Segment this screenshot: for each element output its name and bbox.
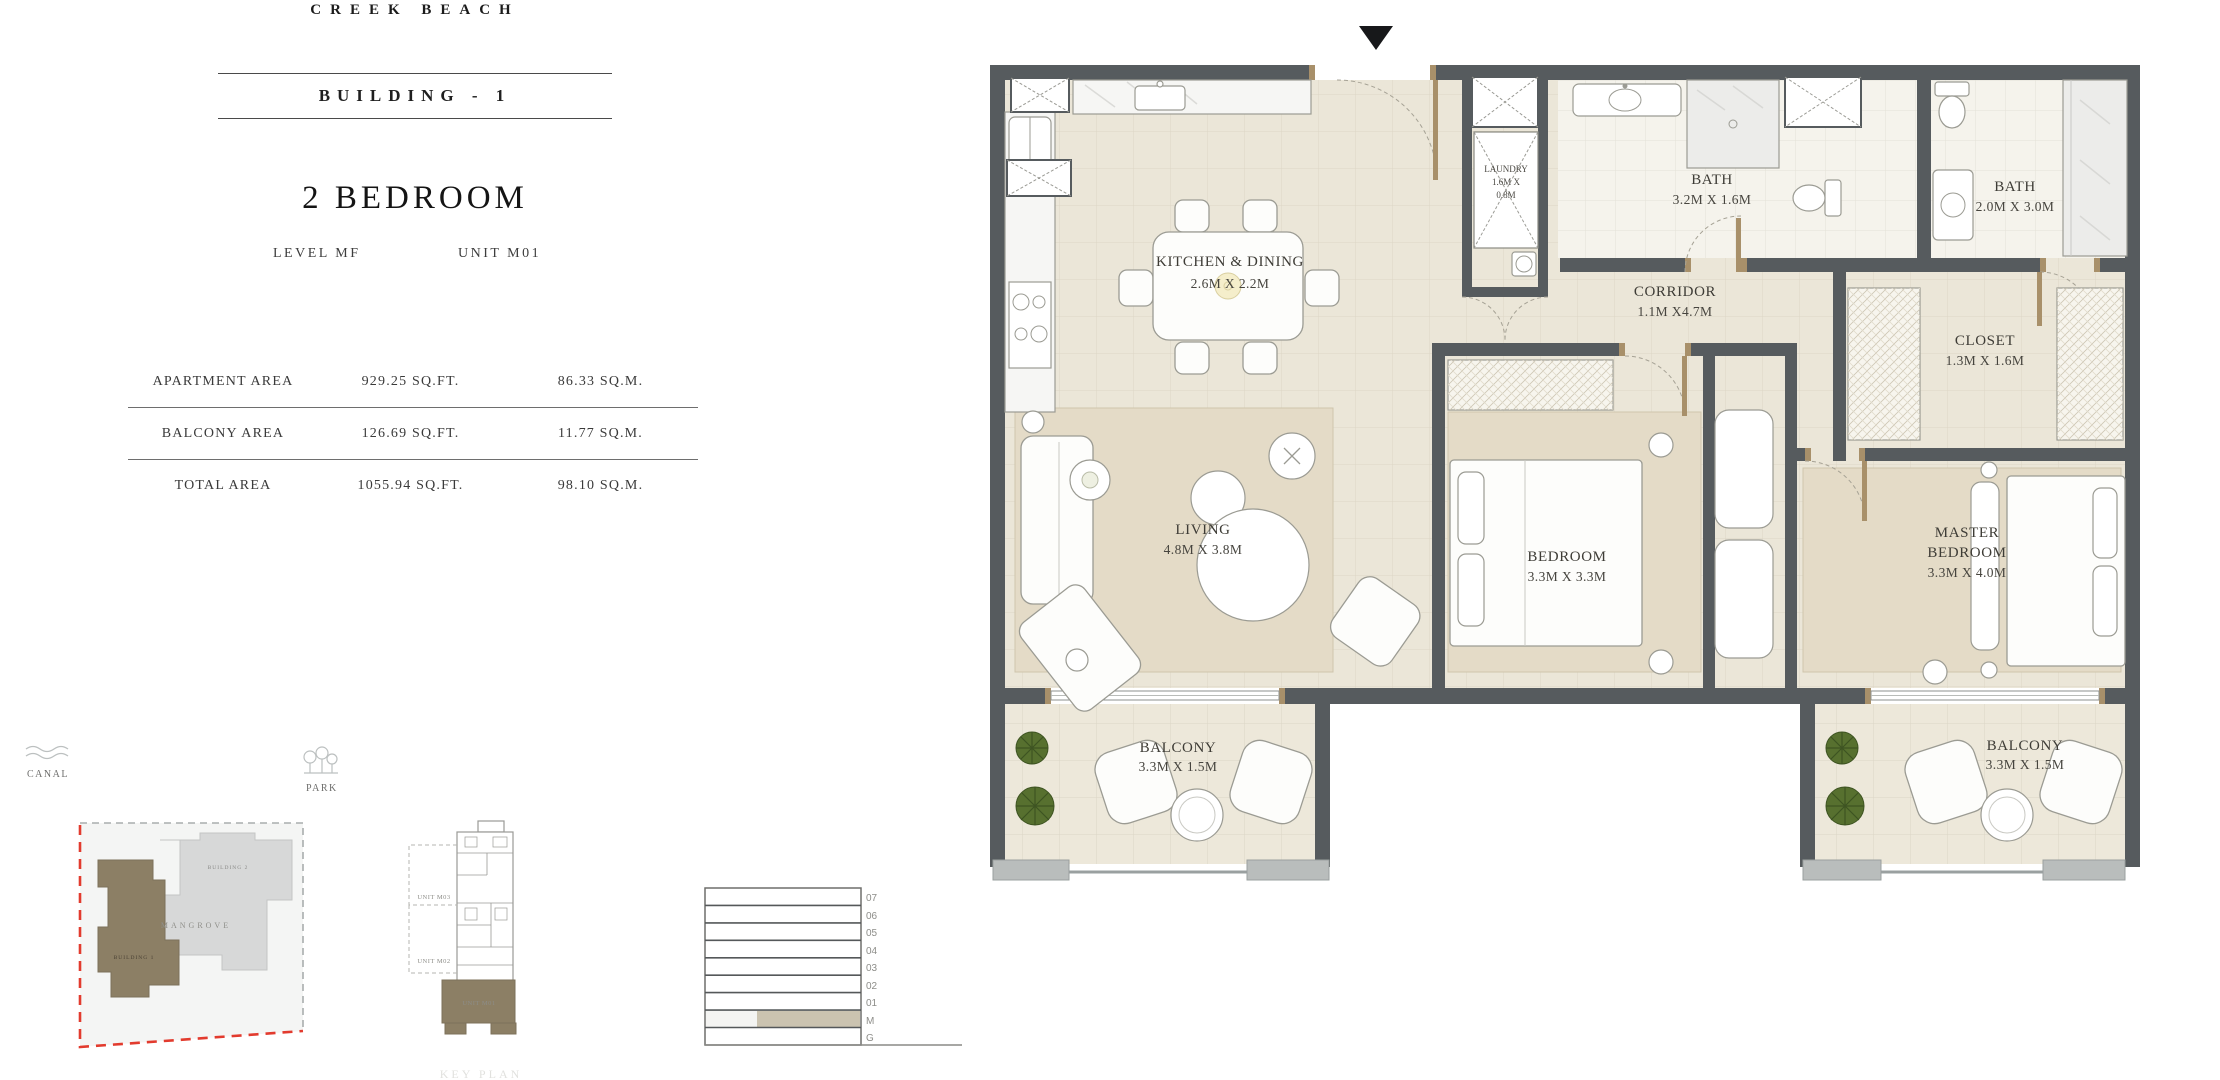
level-label-05: 05	[866, 928, 878, 939]
bedroom-dim: 3.3M X 3.3M	[1528, 569, 1607, 584]
laundry-dim-1: 1.6M X	[1492, 177, 1521, 187]
site-plan: CANAL PARK BUILDING 2 BUILDING 1 MANGROV…	[10, 735, 350, 1065]
area-table: APARTMENT AREA 929.25 SQ.FT. 86.33 SQ.M.…	[128, 356, 698, 511]
canal-icon	[26, 747, 68, 759]
area-row-sqft: 126.69 SQ.FT.	[318, 426, 503, 442]
area-row-label: BALCONY AREA	[128, 426, 318, 442]
key-plan-highlight-unit: UNIT M01	[442, 980, 516, 1034]
corridor-label: CORRIDOR	[1634, 284, 1716, 300]
key-plan-caption: KEY PLAN	[440, 1067, 523, 1080]
level-label-02: 02	[866, 981, 878, 992]
level-highlight-m	[706, 1011, 860, 1027]
level-label-g: G	[866, 1033, 874, 1044]
area-row-sqm: 98.10 SQ.M.	[503, 478, 698, 494]
level-label-04: 04	[866, 946, 878, 957]
level-label-03: 03	[866, 963, 878, 974]
table-row: APARTMENT AREA 929.25 SQ.FT. 86.33 SQ.M.	[128, 356, 698, 408]
park-icon	[304, 747, 338, 773]
level-label-07: 07	[866, 893, 878, 904]
level-label-06: 06	[866, 911, 878, 922]
building-1-label: BUILDING 1	[114, 955, 155, 961]
unit-type-title: 2 BEDROOM	[0, 180, 830, 217]
area-row-sqft: 929.25 SQ.FT.	[318, 374, 503, 390]
bath2-dim: 2.0M X 3.0M	[1976, 199, 2055, 214]
canal-label: CANAL	[27, 769, 69, 780]
kitchen-label: KITCHEN & DINING	[1156, 254, 1304, 270]
living-label: LIVING	[1175, 522, 1230, 538]
closet-label: CLOSET	[1955, 333, 2015, 349]
bath1-dim: 3.2M X 1.6M	[1673, 192, 1752, 207]
master-label-2: BEDROOM	[1927, 545, 2006, 561]
bath1-label: BATH	[1691, 172, 1733, 188]
key-plan: UNIT M03 UNIT M02 UNIT M01 KEY PLAN	[395, 775, 610, 1080]
mangrove-label: MANGROVE	[161, 921, 231, 930]
building-2-label: BUILDING 2	[208, 865, 249, 871]
balcony-right-dim: 3.3M X 1.5M	[1986, 757, 2065, 772]
master-label-1: MASTER	[1935, 525, 1999, 541]
building-label: BUILDING - 1	[319, 86, 512, 105]
building-banner: BUILDING - 1	[218, 73, 612, 119]
level-labels: 07 06 05 04 03 02 01 M G	[866, 893, 878, 1044]
level-diagram: 07 06 05 04 03 02 01 M G	[700, 880, 975, 1055]
level-label-m: M	[866, 1016, 874, 1027]
level-label-01: 01	[866, 998, 878, 1009]
area-row-sqm: 86.33 SQ.M.	[503, 374, 698, 390]
laundry-label: LAUNDRY	[1484, 164, 1528, 174]
area-row-label: TOTAL AREA	[128, 478, 318, 494]
closet-dim: 1.3M X 1.6M	[1946, 353, 2025, 368]
level-label: LEVEL MF	[273, 246, 361, 262]
living-dim: 4.8M X 3.8M	[1164, 542, 1243, 557]
area-row-sqft: 1055.94 SQ.FT.	[318, 478, 503, 494]
area-row-sqm: 11.77 SQ.M.	[503, 426, 698, 442]
corridor-dim: 1.1M X4.7M	[1638, 304, 1713, 319]
balcony-left-label: BALCONY	[1140, 740, 1217, 756]
key-plan-neighbor-units	[409, 845, 457, 973]
key-plan-unit-m03: UNIT M03	[417, 894, 450, 901]
unit-label: UNIT M01	[458, 246, 541, 262]
floor-plan: KITCHEN & DINING 2.6M X 2.2M LAUNDRY 1.6…	[985, 20, 2155, 910]
park-label: PARK	[306, 783, 338, 794]
brand-title: CREEK BEACH	[0, 2, 830, 19]
bath2-label: BATH	[1994, 179, 2036, 195]
bedroom-label: BEDROOM	[1527, 549, 1606, 565]
laundry-dim-2: 0.8M	[1496, 190, 1515, 200]
key-plan-unit-m02: UNIT M02	[417, 958, 450, 965]
master-dim: 3.3M X 4.0M	[1928, 565, 2007, 580]
balcony-right-label: BALCONY	[1987, 738, 2064, 754]
brochure-page: CREEK BEACH BUILDING - 1 2 BEDROOM LEVEL…	[0, 0, 2220, 1080]
key-plan-unit-m01: UNIT M01	[462, 1000, 495, 1007]
key-plan-outline	[457, 821, 513, 982]
table-row: TOTAL AREA 1055.94 SQ.FT. 98.10 SQ.M.	[128, 460, 698, 511]
area-row-label: APARTMENT AREA	[128, 374, 318, 390]
entrance-arrow-icon	[1359, 26, 1393, 50]
kitchen-dim: 2.6M X 2.2M	[1191, 276, 1270, 291]
table-row: BALCONY AREA 126.69 SQ.FT. 11.77 SQ.M.	[128, 408, 698, 460]
balcony-left-dim: 3.3M X 1.5M	[1139, 759, 1218, 774]
